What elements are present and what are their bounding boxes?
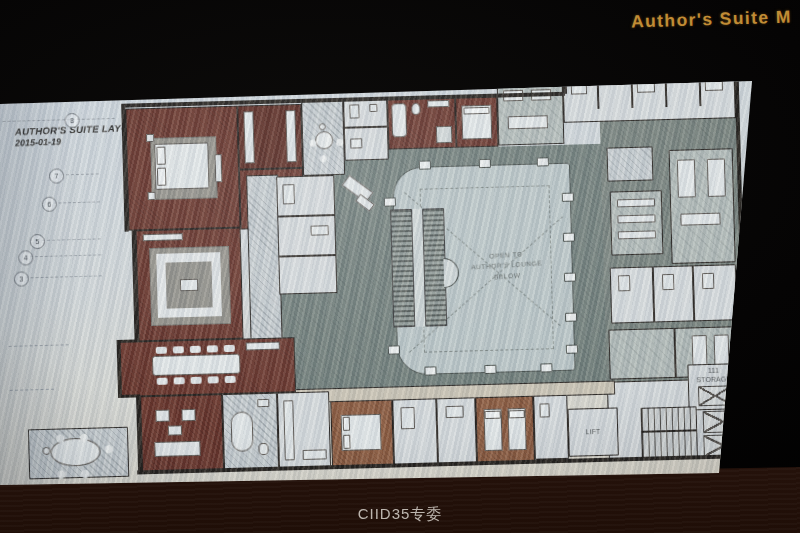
table-symbol <box>168 425 182 435</box>
table-symbol <box>680 213 720 226</box>
column-pad <box>562 193 574 202</box>
toilet-symbol <box>258 443 268 455</box>
grid-bubble: 7 <box>49 168 64 183</box>
shelf-symbol <box>617 214 655 223</box>
column-pad <box>537 157 549 166</box>
vanity-symbol <box>427 100 449 108</box>
wall <box>117 339 139 343</box>
chair-symbols <box>156 347 167 354</box>
table-symbol <box>508 115 548 129</box>
pillow-symbol <box>156 147 165 165</box>
column-pad <box>563 233 575 242</box>
column-pad <box>484 365 496 374</box>
column-pad <box>388 345 400 354</box>
pillow-symbol <box>343 435 350 449</box>
column-pad <box>479 159 491 168</box>
shelf-symbol <box>618 230 656 239</box>
sofa-symbol <box>154 441 200 457</box>
sink-symbol <box>257 399 269 407</box>
fixture-symbol <box>662 274 674 290</box>
shower-symbol <box>436 126 452 143</box>
grid-line <box>10 389 54 391</box>
toilet-symbol <box>411 103 420 115</box>
bathtub-symbol <box>231 411 254 452</box>
armchair-symbol <box>155 410 169 422</box>
fixture-symbol <box>445 406 463 418</box>
wardrobe-symbol <box>285 110 296 162</box>
fixture-symbol <box>350 138 362 148</box>
bed-symbol <box>707 158 726 196</box>
fixture-symbol <box>702 273 714 289</box>
counter-symbol <box>303 449 327 460</box>
fixture-symbol <box>400 407 415 429</box>
grid-bubble: 6 <box>42 197 57 212</box>
column-pad <box>384 197 396 206</box>
bed-symbol <box>714 334 730 366</box>
column-pad <box>565 313 577 322</box>
grid-bubble: 4 <box>18 250 33 265</box>
nightstand-symbol <box>146 134 154 142</box>
fixture-symbol <box>539 403 549 417</box>
fixture-symbol <box>311 225 329 235</box>
lift-lobby: LIFT <box>568 407 619 456</box>
shelf-symbol <box>617 198 655 207</box>
pillow-symbol <box>509 410 525 418</box>
grid-bubble: 3 <box>14 271 29 286</box>
column-pad <box>566 345 578 354</box>
column-pad <box>424 366 436 375</box>
bed-symbol <box>692 335 708 367</box>
floor-plan: OPEN TO AUTHOR'S LOUNGE BELOW <box>87 88 749 476</box>
fixture-symbol <box>282 184 295 204</box>
lift-label: LIFT <box>586 427 601 436</box>
pillow-symbol <box>485 411 501 419</box>
grid-bubble: 5 <box>30 234 45 249</box>
wardrobe-symbol <box>243 111 254 163</box>
pillow-symbol <box>463 107 489 115</box>
bench-symbol <box>215 154 223 182</box>
service-room <box>607 146 654 181</box>
armchair-symbol <box>181 409 195 421</box>
pillow-symbol <box>157 168 166 186</box>
floor-plan-sheet: AUTHOR'S SUITE LAYOUT 2015-01-19 8 7 6 5… <box>2 80 769 500</box>
column-pad <box>540 363 552 372</box>
grid-line <box>26 275 102 278</box>
fixture-symbol <box>349 104 359 118</box>
fixture-symbol <box>618 275 630 291</box>
wardrobe-symbol <box>283 400 295 460</box>
console-symbol <box>143 233 183 241</box>
grid-line <box>9 344 69 347</box>
nightstand-symbol <box>148 192 156 200</box>
buffet-symbol <box>246 342 280 351</box>
bathtub-symbol <box>391 103 407 137</box>
pillow-symbol <box>343 417 350 431</box>
dining-table-symbol <box>152 354 241 376</box>
watermark: CIID35专委 <box>358 505 443 524</box>
column-pad <box>419 160 431 169</box>
coffee-table-symbol <box>180 279 198 291</box>
fixture-symbol <box>369 104 377 112</box>
stair-run-symbol <box>390 209 415 328</box>
bed-symbol <box>677 159 696 197</box>
